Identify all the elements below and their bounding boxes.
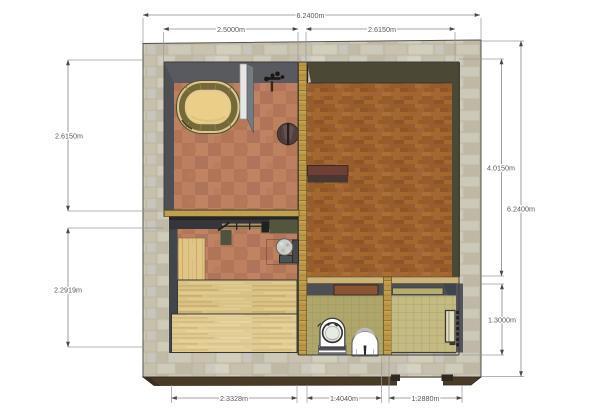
svg-text:1.3000m: 1.3000m <box>488 316 516 325</box>
svg-text:2.6150m: 2.6150m <box>55 132 83 141</box>
svg-text:2.3328m: 2.3328m <box>220 394 248 403</box>
svg-text:4.0150m: 4.0150m <box>487 164 515 173</box>
svg-text:2.5000m: 2.5000m <box>217 25 245 34</box>
svg-text:2.6150m: 2.6150m <box>368 25 396 34</box>
svg-text:1.2880m: 1.2880m <box>412 394 440 403</box>
svg-text:6.2400m: 6.2400m <box>507 205 535 214</box>
svg-text:1.4040m: 1.4040m <box>330 394 358 403</box>
svg-text:2.2919m: 2.2919m <box>54 286 82 295</box>
svg-text:6.2400m: 6.2400m <box>297 11 325 20</box>
